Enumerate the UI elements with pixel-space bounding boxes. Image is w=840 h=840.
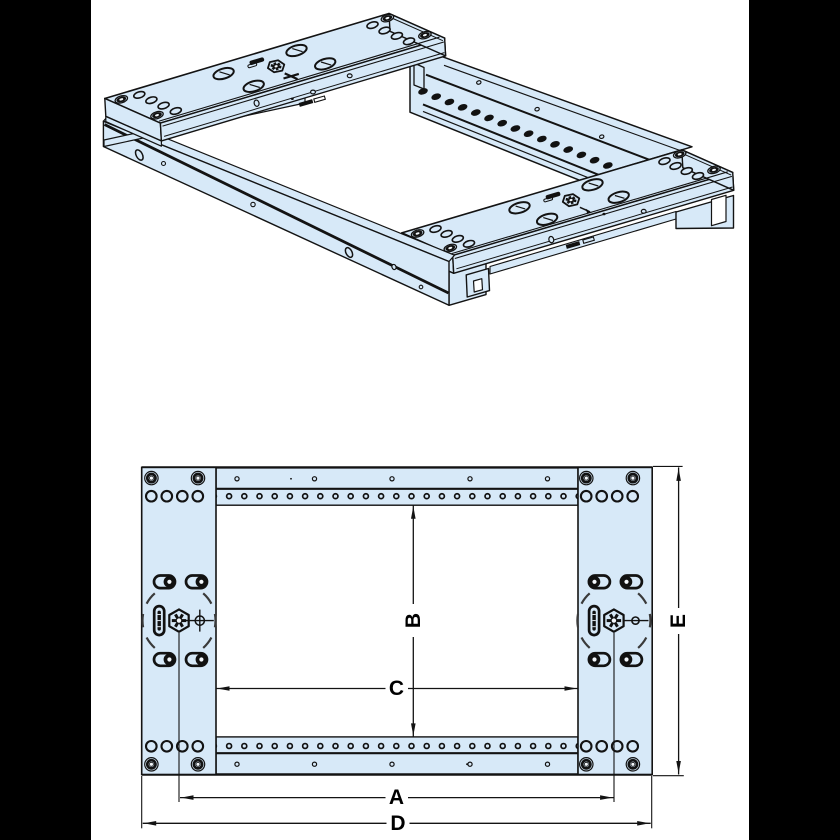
svg-text:C: C (389, 677, 404, 700)
svg-text:E: E (667, 614, 690, 628)
svg-text:B: B (402, 613, 425, 628)
svg-text:A: A (389, 786, 404, 809)
svg-text:D: D (390, 812, 405, 835)
